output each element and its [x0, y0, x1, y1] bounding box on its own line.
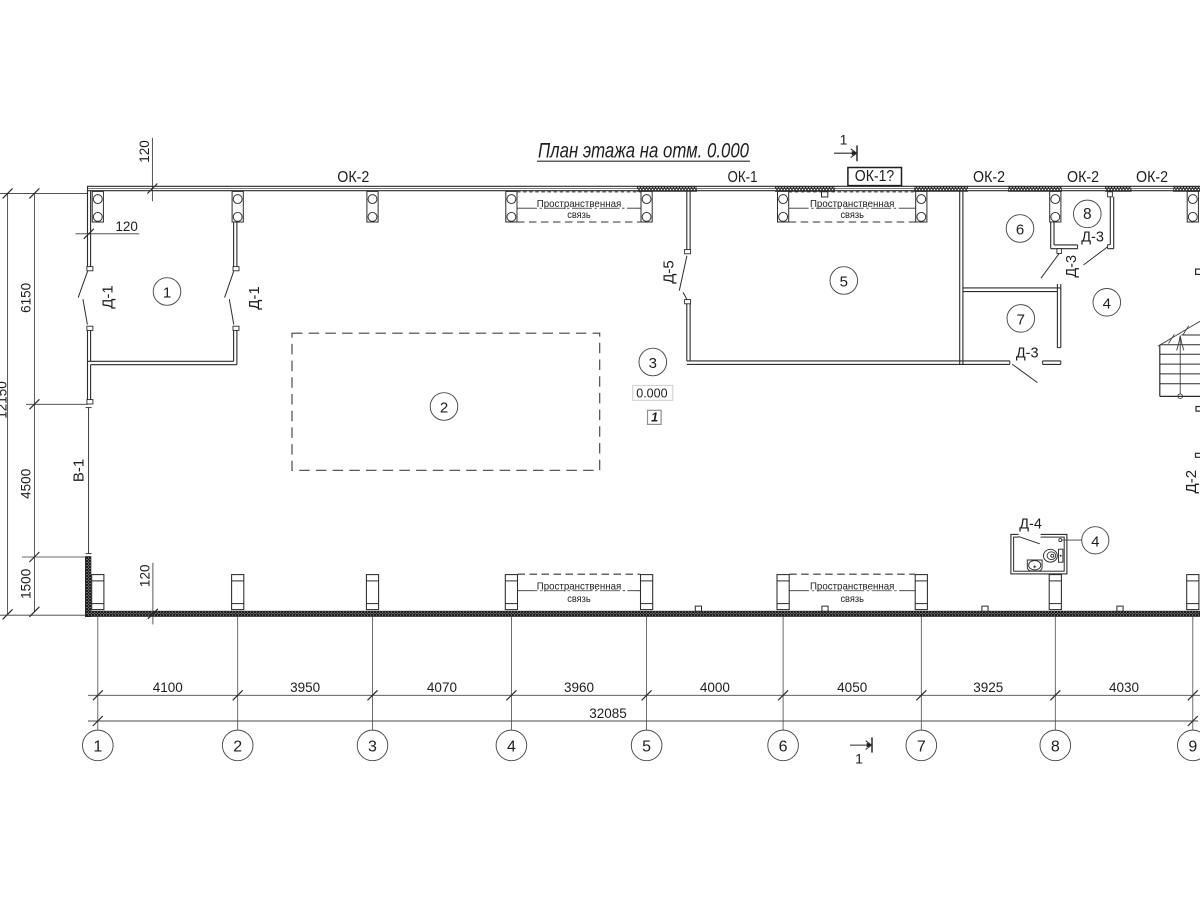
- svg-text:120: 120: [137, 140, 152, 163]
- svg-text:4050: 4050: [837, 680, 867, 695]
- svg-text:5: 5: [642, 738, 651, 755]
- svg-text:Пространственная: Пространственная: [810, 199, 895, 210]
- svg-text:4500: 4500: [19, 469, 34, 499]
- svg-text:6: 6: [779, 738, 788, 755]
- svg-text:Пространственная: Пространственная: [537, 582, 622, 593]
- svg-text:4070: 4070: [427, 680, 457, 695]
- svg-text:4: 4: [507, 738, 516, 755]
- svg-text:4030: 4030: [1109, 680, 1139, 695]
- svg-text:ОК-2: ОК-2: [1136, 169, 1168, 186]
- svg-text:связь: связь: [567, 210, 591, 221]
- svg-text:120: 120: [115, 219, 138, 234]
- svg-text:120: 120: [137, 565, 152, 588]
- svg-text:3960: 3960: [564, 680, 594, 695]
- svg-text:3: 3: [368, 738, 377, 755]
- svg-text:9: 9: [1188, 738, 1197, 755]
- svg-text:Д-3: Д-3: [1016, 345, 1039, 361]
- svg-text:Пространственная: Пространственная: [810, 582, 895, 593]
- svg-text:ОК-1?: ОК-1?: [855, 168, 895, 185]
- svg-text:Д-3: Д-3: [1081, 229, 1104, 245]
- svg-text:3925: 3925: [973, 680, 1003, 695]
- svg-text:1: 1: [855, 750, 863, 766]
- svg-text:ОК-2: ОК-2: [337, 169, 369, 186]
- svg-text:32085: 32085: [589, 706, 627, 721]
- svg-text:План этажа на отм. 0.000: План этажа на отм. 0.000: [538, 140, 749, 163]
- svg-text:1: 1: [651, 411, 658, 425]
- svg-text:5: 5: [840, 274, 848, 291]
- svg-text:связь: связь: [567, 594, 591, 605]
- svg-text:связь: связь: [840, 594, 864, 605]
- svg-text:6150: 6150: [19, 283, 34, 313]
- svg-text:7: 7: [1017, 311, 1025, 328]
- svg-text:8: 8: [1051, 738, 1060, 755]
- svg-text:1: 1: [93, 738, 102, 755]
- svg-text:8: 8: [1083, 206, 1092, 223]
- svg-text:Пространственная: Пространственная: [537, 199, 622, 210]
- svg-text:Д-3: Д-3: [1064, 255, 1080, 278]
- svg-text:1500: 1500: [19, 569, 34, 599]
- svg-text:3: 3: [649, 355, 657, 372]
- svg-text:1: 1: [163, 285, 171, 302]
- svg-text:2: 2: [233, 738, 242, 755]
- svg-text:2: 2: [440, 400, 448, 417]
- svg-text:В-1: В-1: [71, 459, 88, 482]
- svg-text:4000: 4000: [700, 680, 730, 695]
- svg-text:4: 4: [1091, 533, 1099, 550]
- svg-text:12150: 12150: [0, 381, 10, 419]
- svg-text:Д-5: Д-5: [660, 260, 677, 284]
- svg-text:ОК-2: ОК-2: [973, 169, 1005, 186]
- svg-text:Д-1: Д-1: [100, 285, 117, 309]
- svg-text:связь: связь: [840, 210, 864, 221]
- svg-text:ОК-2: ОК-2: [1067, 169, 1099, 186]
- svg-text:6: 6: [1016, 222, 1024, 239]
- svg-text:ОК-1: ОК-1: [728, 169, 758, 186]
- svg-text:3950: 3950: [290, 680, 320, 695]
- svg-text:Д-2: Д-2: [1183, 470, 1200, 494]
- svg-text:Д-1: Д-1: [246, 286, 263, 310]
- svg-text:4: 4: [1103, 295, 1111, 312]
- svg-text:4100: 4100: [153, 680, 183, 695]
- svg-text:0.000: 0.000: [636, 387, 667, 401]
- svg-text:Д-4: Д-4: [1019, 516, 1042, 532]
- svg-text:7: 7: [917, 738, 926, 755]
- svg-text:1: 1: [840, 132, 848, 148]
